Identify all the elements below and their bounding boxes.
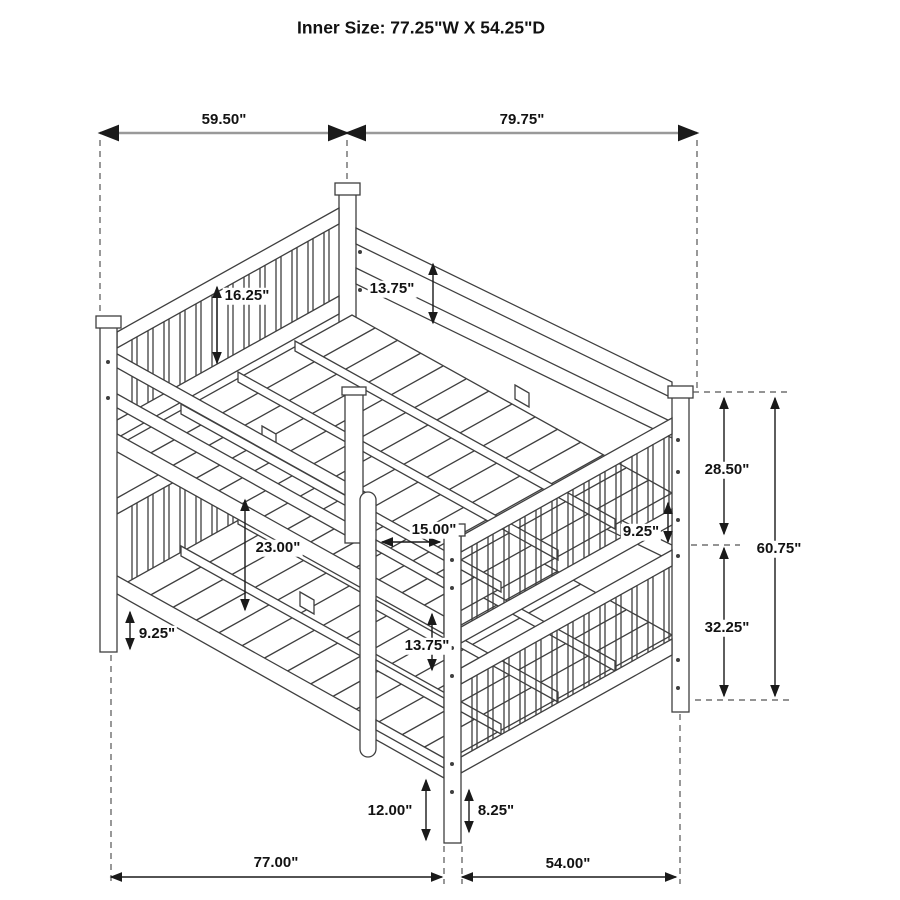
dim-label-headboard-panel: 16.25" bbox=[223, 288, 272, 305]
dim-label-top-right-length: 79.75" bbox=[498, 112, 547, 129]
dim-label-overall-rail-height: 60.75" bbox=[755, 541, 804, 558]
dim-label-right-leg-clearance: 8.25" bbox=[476, 803, 516, 820]
dim-label-bottom-depth: 54.00" bbox=[544, 856, 593, 873]
dim-label-front-leg-clearance: 12.00" bbox=[366, 803, 415, 820]
head-near-post bbox=[96, 316, 121, 652]
diagram-title: Inner Size: 77.25"W X 54.25"D bbox=[295, 18, 547, 39]
dim-label-bottom-length: 77.00" bbox=[252, 855, 301, 872]
line-art-canvas bbox=[0, 0, 900, 900]
dim-label-ladder-gap: 13.75" bbox=[403, 638, 452, 655]
dim-label-ladder-width: 15.00" bbox=[410, 522, 459, 539]
dim-label-upper-side-rail: 13.75" bbox=[368, 281, 417, 298]
dim-label-guard-gap-right: 9.25" bbox=[621, 524, 661, 541]
dim-label-upper-section: 28.50" bbox=[703, 462, 752, 479]
dim-label-bunk-clearance: 23.00" bbox=[254, 540, 303, 557]
foot-near-post bbox=[440, 524, 465, 843]
dim-label-lower-section: 32.25" bbox=[703, 620, 752, 637]
dim-label-top-left-width: 59.50" bbox=[200, 112, 249, 129]
foot-far-post bbox=[668, 386, 693, 712]
dim-label-lower-clearance-left: 9.25" bbox=[137, 626, 177, 643]
bunk-bed-dimension-diagram: Inner Size: 77.25"W X 54.25"D 59.50" 79.… bbox=[0, 0, 900, 900]
